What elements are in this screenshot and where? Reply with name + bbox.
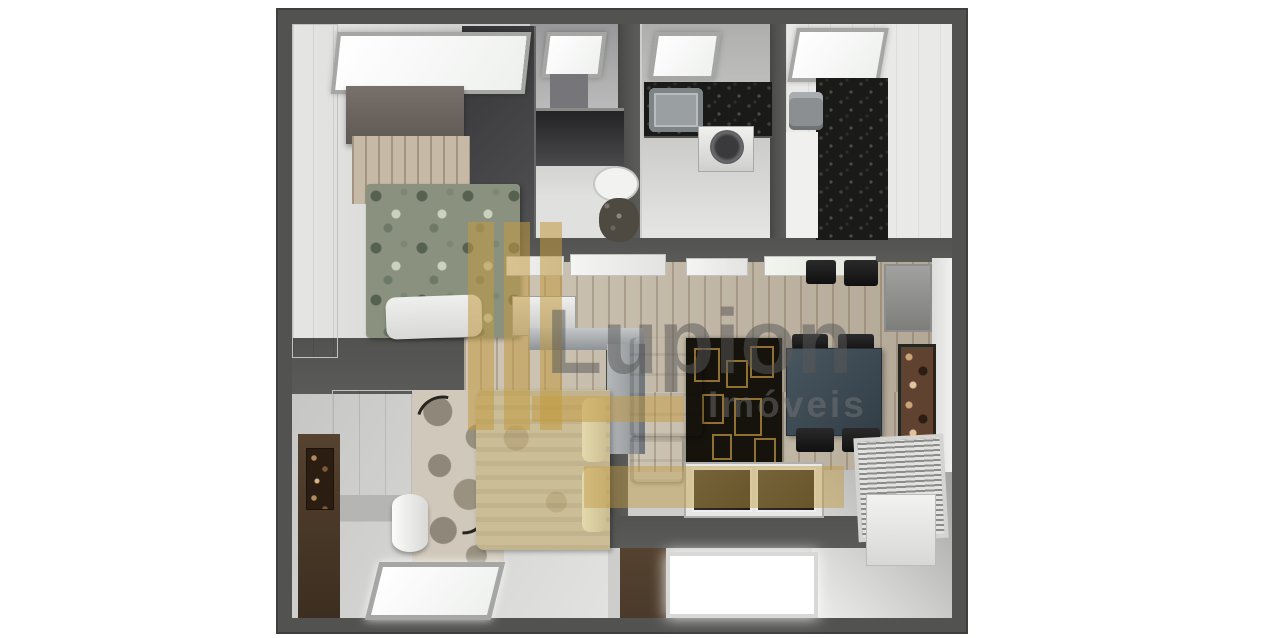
rug-pattern-rect [712,434,732,460]
sideboard-cabinet [884,264,932,332]
wall-balcony [606,516,868,548]
balcony-brown-panel [620,548,666,618]
dining-chair [806,260,836,284]
bedroom1-ceiling-window [331,32,532,94]
bathroom2-shower-fixture [789,92,823,130]
page: { "scene": { "description": "3D top-down… [0,0,1280,638]
bathroom1-wall-box [550,74,588,112]
laundry-hamper [392,494,428,552]
bathroom2-ceiling-window [787,28,889,82]
ceiling-beam [570,254,666,276]
dining-chair [796,428,834,452]
toilet-pedestal [599,198,639,242]
watermark-logo-bar-long [584,466,844,508]
dining-chair [844,260,878,286]
ceiling-beam [686,258,748,276]
balcony-right-white-panel [866,494,936,566]
entry-floor-window [365,562,505,620]
watermark-tagline: Imóveis [708,386,867,423]
watermark-logo-bar-mid [532,396,684,422]
wall-art-frame [898,344,936,442]
bathroom1-ceiling-window [541,32,607,78]
washing-machine-lid [710,130,744,164]
toilet-seat [593,166,639,202]
watermark-brand: Lupion [546,296,853,388]
rug-crescent [408,387,474,452]
balcony-lit-floor [666,552,818,618]
wall-laundry-bath2 [770,24,786,240]
laundry-ceiling-window [649,32,722,80]
bathroom1-vanity-counter [536,108,624,166]
bathroom2-granite-wall [816,78,888,240]
master-panel-art [306,448,334,510]
bedroom1-wardrobe [292,24,338,358]
laundry-steel-sink [649,88,703,132]
bathroom2-floor-strip [786,132,818,238]
